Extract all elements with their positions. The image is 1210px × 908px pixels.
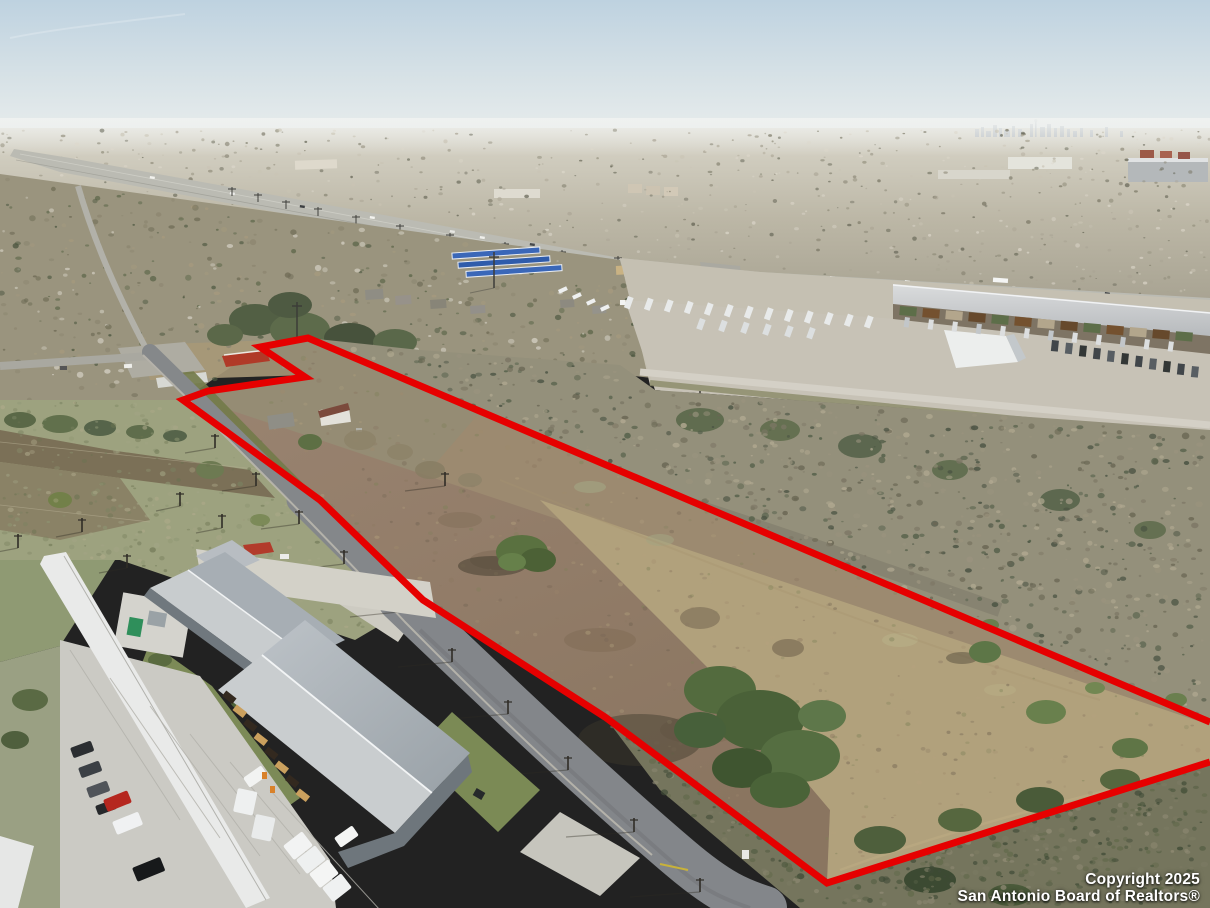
- roadside-sign: [742, 850, 749, 859]
- aerial-photo: Copyright 2025 San Antonio Board of Real…: [0, 0, 1210, 908]
- dead-tree: [680, 607, 720, 629]
- horizon-haze: [0, 118, 1210, 156]
- dead-tree: [772, 639, 804, 657]
